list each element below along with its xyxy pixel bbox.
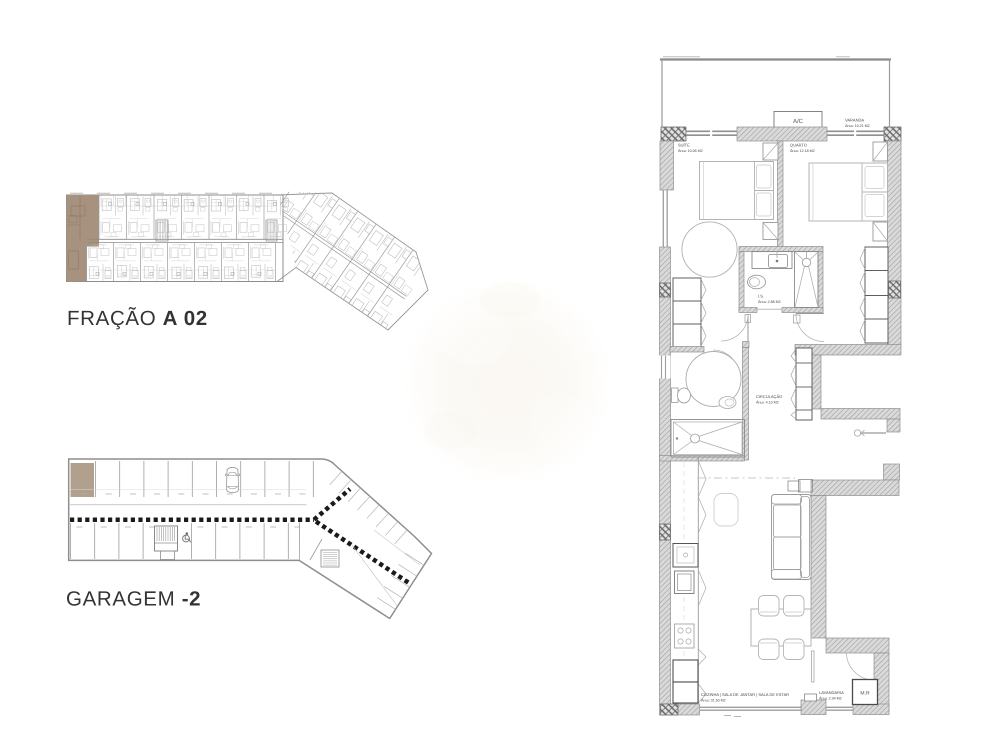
svg-text:GARAGEM -2: GARAGEM -2: [66, 588, 201, 611]
svg-text:Área: 10.06 M2: Área: 10.06 M2: [678, 148, 703, 153]
svg-text:COZINHA | SALA DE JANTAR |: COZINHA | SALA DE JANTAR | SALA DE ESTAR: [701, 692, 789, 697]
svg-text:CIRCULAÇÃO: CIRCULAÇÃO: [756, 394, 782, 399]
svg-text:LAVANDARIA: LAVANDARIA: [819, 690, 844, 695]
svg-text:Área: 10.21 M2: Área: 10.21 M2: [845, 123, 870, 128]
svg-text:A/C: A/C: [793, 118, 804, 125]
svg-text:Área: 2.34 M2: Área: 2.34 M2: [819, 696, 842, 701]
svg-text:Área: 4.10 M2: Área: 4.10 M2: [756, 400, 779, 405]
svg-text:Área: 2.88 M2: Área: 2.88 M2: [758, 299, 781, 304]
svg-text:I.S.: I.S.: [758, 294, 764, 299]
svg-text:M.R: M.R: [860, 691, 870, 697]
svg-text:SUÍTE: SUÍTE: [678, 143, 690, 148]
svg-text:QUARTO: QUARTO: [790, 143, 807, 148]
svg-text:Área: 31.50 M2: Área: 31.50 M2: [701, 698, 726, 703]
svg-text:Área: 12.18 M2: Área: 12.18 M2: [790, 148, 815, 153]
svg-text:VARANDA: VARANDA: [845, 118, 864, 123]
svg-text:FRAÇÃO A 02: FRAÇÃO A 02: [67, 307, 208, 330]
